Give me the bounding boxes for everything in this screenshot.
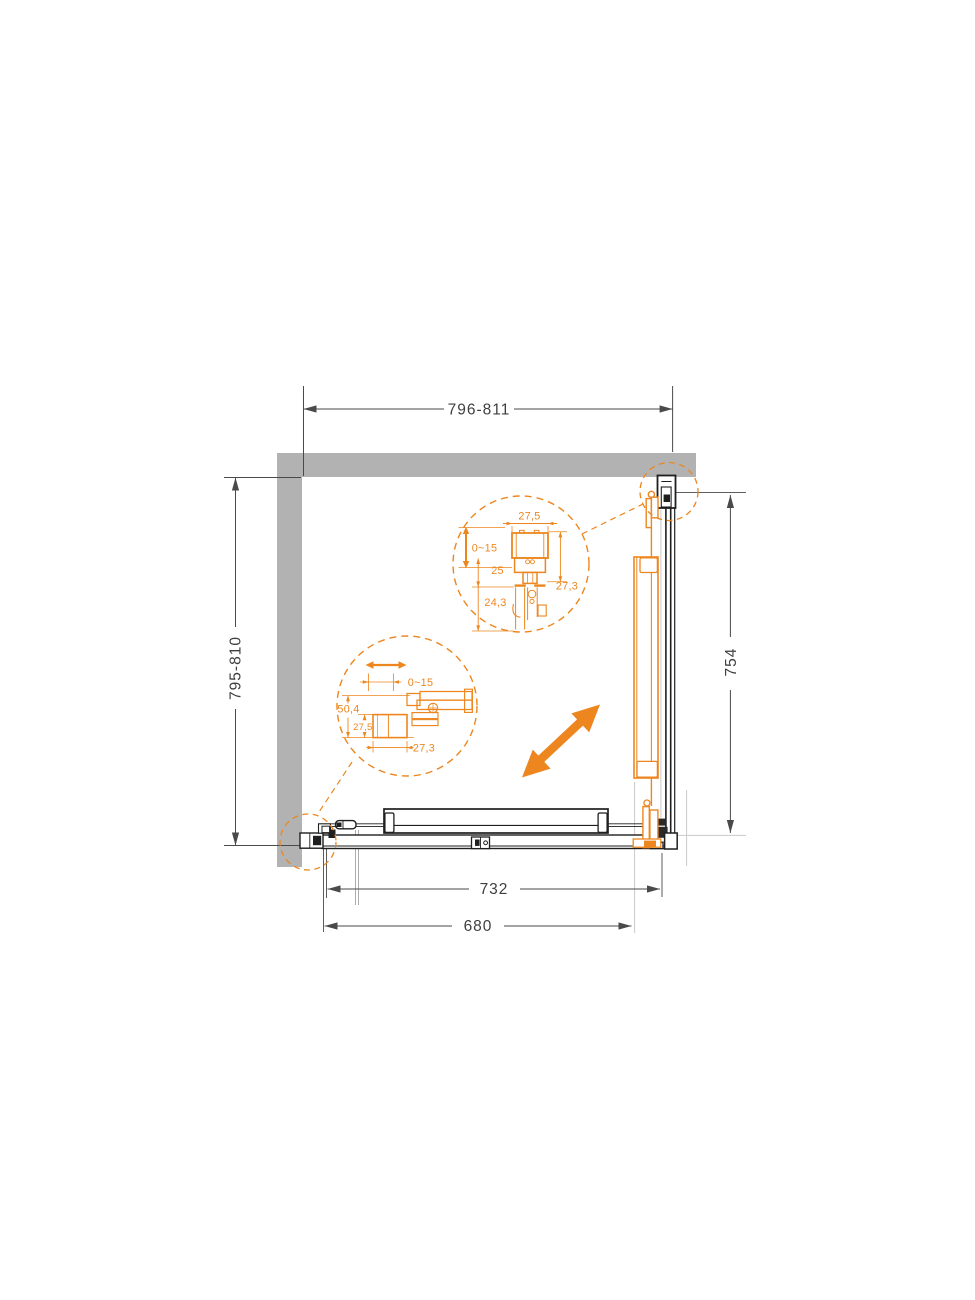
wall xyxy=(277,453,696,867)
detail-left-adjust-label: 0~15 xyxy=(408,677,434,689)
bracket-center xyxy=(472,837,490,849)
dim-left-depth-label: 795-810 xyxy=(228,636,245,700)
detail-top-adjust-label: 0~15 xyxy=(472,543,498,555)
detail-left-dim-adjust xyxy=(360,674,402,692)
detail-left-dim-width xyxy=(367,741,414,753)
dim-bottom-glass-label: 680 xyxy=(464,918,493,935)
slide-direction-arrow xyxy=(366,661,407,668)
detail-top-width-label: 27,5 xyxy=(518,511,540,523)
roller-top-right xyxy=(646,491,658,557)
shower-enclosure-plan: 796-811 795-810 754 732 680 xyxy=(0,0,975,1300)
detail-left-width-label: 27,3 xyxy=(413,743,435,755)
detail-left-content xyxy=(342,661,472,752)
dim-bottom-track-label: 732 xyxy=(480,881,509,898)
wall-profile-top-right xyxy=(658,476,676,509)
detail-top-dim-width xyxy=(503,522,557,532)
detail-top-lower-label: 24,3 xyxy=(484,597,506,609)
callout-leader-left xyxy=(319,762,352,812)
roller-arm-section xyxy=(407,689,472,725)
wall-profile-section xyxy=(373,715,407,738)
wall-left xyxy=(277,477,302,867)
sliding-door-side xyxy=(634,557,658,778)
dim-right-height-label: 754 xyxy=(723,648,740,677)
sliding-door-bottom xyxy=(384,809,608,833)
callout-leader-top xyxy=(582,504,643,534)
roller-carriage-left xyxy=(336,821,357,829)
detail-top-inset-label: 25 xyxy=(491,565,504,577)
fixed-side-panel xyxy=(666,508,675,848)
detail-left-height-label: 50,4 xyxy=(337,704,359,716)
wall-top xyxy=(277,453,696,477)
detail-top-side-label: 27,3 xyxy=(556,581,578,593)
opening-direction-arrow xyxy=(522,705,600,778)
detail-top-dim-side xyxy=(547,532,567,582)
detail-left-block-label: 27,5 xyxy=(353,722,372,733)
detail-top-dim-lower xyxy=(472,587,513,631)
dim-top-width-label: 796-811 xyxy=(448,402,511,419)
drawing-page: 796-811 795-810 754 732 680 xyxy=(0,0,975,1300)
